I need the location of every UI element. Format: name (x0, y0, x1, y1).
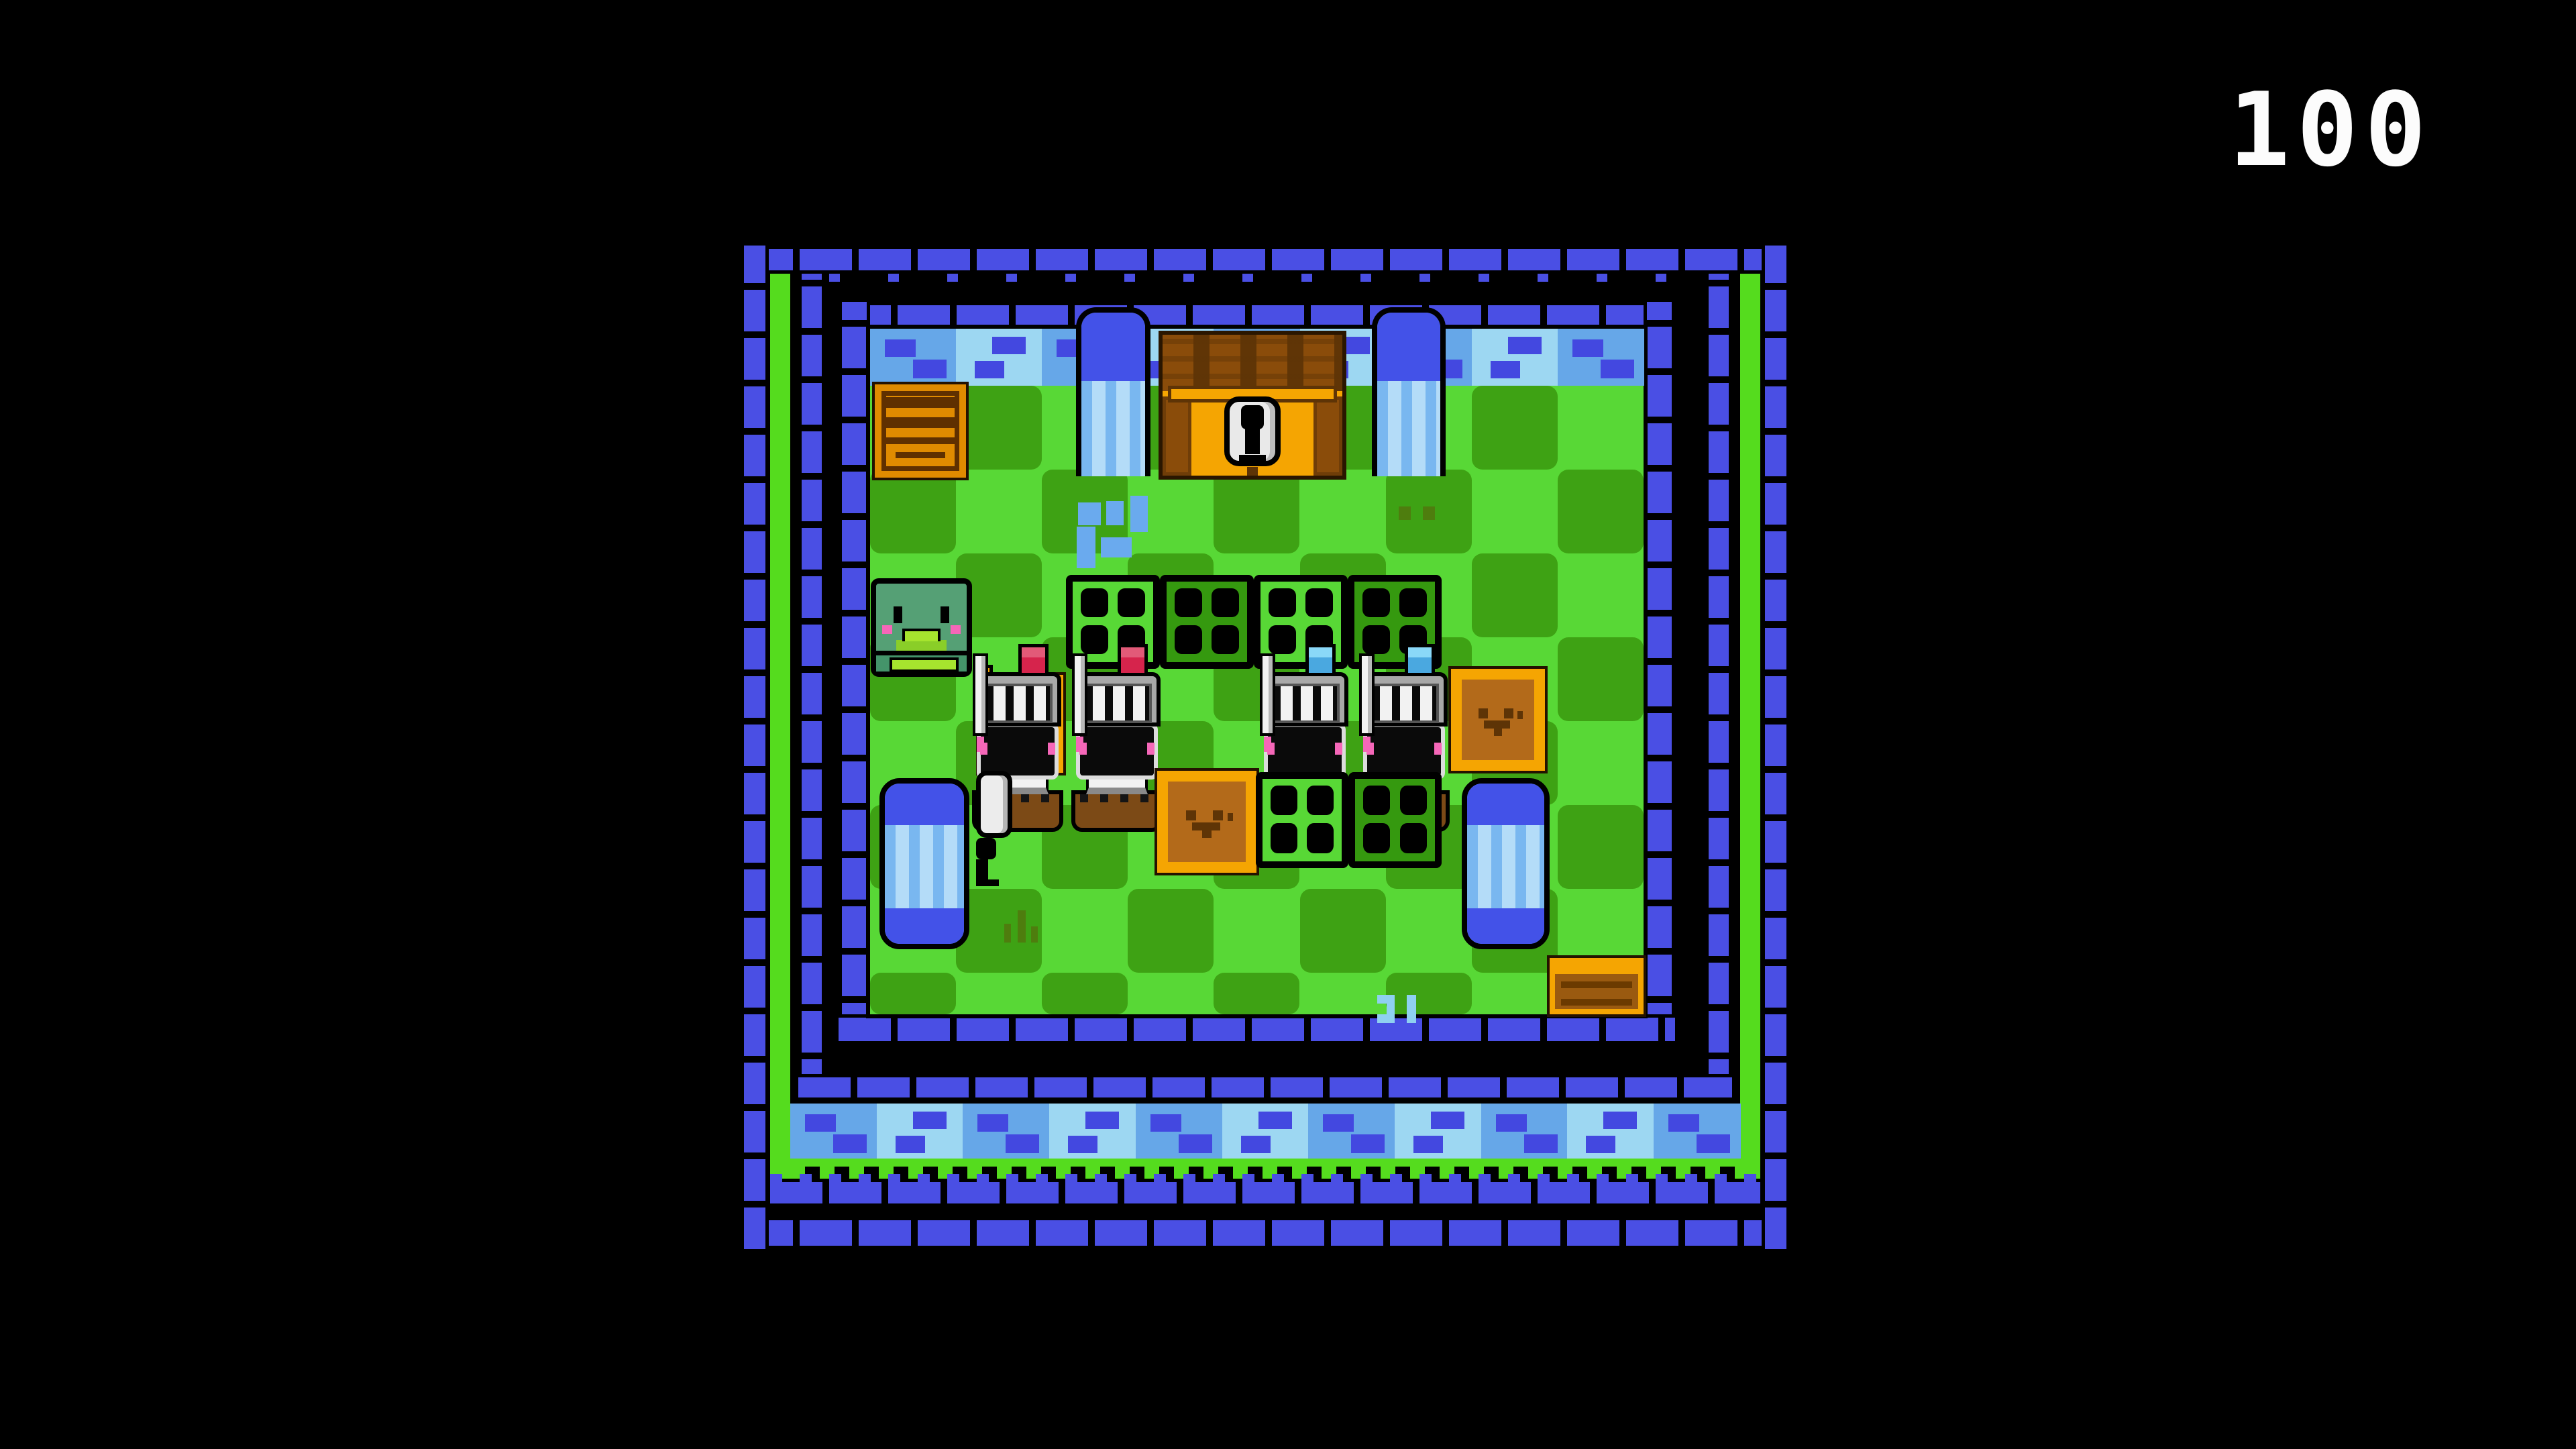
pixel (1101, 537, 1132, 557)
knight-red (1067, 644, 1167, 832)
water-tile (1049, 1104, 1136, 1159)
frame-mid-left (798, 274, 825, 1101)
water-tile (1308, 1104, 1395, 1159)
water-patch (992, 337, 1026, 354)
white-plume-icon (1260, 653, 1275, 736)
water-patch (1179, 1134, 1212, 1153)
water-patch (1150, 1114, 1181, 1132)
water-patch (975, 361, 1004, 378)
pillar-bottom-right (1462, 778, 1550, 949)
water-patch (1496, 1114, 1527, 1132)
water-patch (1524, 1134, 1558, 1153)
game-board[interactable] (741, 246, 1790, 1249)
dice-dot (1175, 625, 1202, 654)
plume-icon (1118, 644, 1147, 676)
locked-door (1159, 331, 1346, 480)
water-patch (1603, 1112, 1637, 1129)
pixel (1407, 995, 1416, 1023)
water-patch (977, 1114, 1008, 1132)
moat-water-strip (790, 1104, 1740, 1159)
crate-small (1550, 958, 1644, 1014)
grass-dark-tile (1214, 973, 1299, 1014)
pillar-top-right (1372, 307, 1446, 476)
water-patch (1351, 1134, 1385, 1153)
pixel (1004, 924, 1011, 943)
water-patch (1586, 1136, 1615, 1153)
water-tile (1222, 1104, 1309, 1159)
playfield (870, 329, 1644, 1014)
score-display: 100 (2229, 79, 2433, 181)
pixel (1130, 496, 1148, 532)
keyhole-icon (976, 771, 1012, 838)
white-plume-icon (973, 653, 987, 736)
water-patch (1491, 361, 1520, 378)
pixel (1031, 926, 1038, 943)
water-patch (1006, 1134, 1039, 1153)
pixel (1387, 1004, 1395, 1014)
water-patch (885, 339, 916, 357)
grass-dark-tile (870, 973, 956, 1014)
dice-block (1348, 772, 1442, 868)
key-icon (977, 574, 1012, 629)
grass-dark-tile (956, 386, 1042, 470)
water-patch (1258, 1112, 1292, 1129)
white-plume-icon (1072, 653, 1087, 736)
frame-notch-top (770, 274, 1760, 282)
frame-green-left (770, 274, 790, 1179)
wall-top (839, 302, 1675, 329)
dice-dot (1271, 823, 1297, 853)
water-patch (1668, 1114, 1699, 1132)
pillar-top-left (1076, 307, 1150, 476)
dice-dot (1269, 588, 1296, 617)
water-patch (1241, 1136, 1271, 1153)
pixel (1377, 995, 1395, 1004)
frog-character (871, 578, 972, 677)
dice-dot (1399, 588, 1427, 617)
frame-mid-right (1705, 274, 1732, 1101)
grass-dark-tile (1300, 889, 1386, 973)
grass-dark-tile (1558, 805, 1644, 889)
water-tile (1472, 329, 1558, 386)
game-screen: 100 (0, 0, 2576, 1449)
pixel (1018, 910, 1026, 943)
white-plume-icon (1359, 653, 1374, 736)
dice-dot (1081, 588, 1108, 617)
water-patch (1697, 1134, 1730, 1153)
dice-dot (1307, 786, 1334, 815)
plume-icon (1018, 644, 1048, 676)
dice-dot (1305, 588, 1333, 617)
frame-battlement-row (770, 1179, 1760, 1207)
water-tile (870, 329, 957, 386)
dice-dot (1118, 588, 1145, 617)
frame-outer-right (1762, 246, 1790, 1249)
water-tile (963, 1104, 1050, 1159)
water-patch (913, 1112, 947, 1129)
plume-icon (1405, 644, 1434, 676)
dice-dot (1400, 786, 1427, 815)
water-patch (1068, 1136, 1097, 1153)
crate-slatted (875, 384, 966, 478)
water-patch (1323, 1114, 1354, 1132)
water-patch (1085, 1112, 1119, 1129)
dice-block (1256, 772, 1348, 868)
water-patch (896, 1136, 925, 1153)
water-tile (1481, 1104, 1568, 1159)
pixel (1399, 506, 1411, 520)
crate-face (1451, 669, 1545, 771)
grass-dark-tile (1472, 386, 1558, 470)
grass-dark-tile (870, 470, 956, 553)
dice-dot (1363, 786, 1390, 815)
grass-dark-tile (1042, 973, 1128, 1014)
dice-block (1160, 575, 1254, 669)
plume-icon (1305, 644, 1335, 676)
grass-dark-tile (1558, 470, 1644, 553)
dice-dot (1400, 823, 1427, 853)
water-patch (833, 1134, 867, 1153)
dice-dot (1175, 588, 1202, 617)
grass-dark-tile (1214, 470, 1299, 553)
grass-dark-tile (1472, 553, 1558, 637)
water-patch (805, 1114, 836, 1132)
dice-dot (1362, 588, 1390, 617)
keyhole-icon (1224, 396, 1281, 466)
water-tile (790, 1104, 877, 1159)
grass-dark-tile (1386, 973, 1472, 1014)
water-patch (1601, 360, 1634, 378)
water-patch (1413, 1136, 1443, 1153)
pixel (1377, 1014, 1395, 1023)
water-tile (1558, 329, 1644, 386)
dice-dot (1212, 588, 1239, 617)
water-tile (1654, 1104, 1741, 1159)
keyhole-block (976, 771, 1062, 875)
frame-outer-bottom (741, 1217, 1790, 1249)
wall-right (1644, 302, 1675, 1044)
pillar-bottom-left (879, 778, 969, 949)
frame-green-right (1740, 274, 1760, 1179)
water-patch (1431, 1112, 1464, 1129)
dice-dot (1271, 786, 1297, 815)
dice-dot (1363, 823, 1390, 853)
dice-dot (1307, 823, 1334, 853)
pixel (1078, 502, 1101, 525)
water-tile (1136, 1104, 1223, 1159)
grass-dark-tile (1558, 637, 1644, 721)
frame-outer-left (741, 246, 769, 1249)
water-tile (877, 1104, 964, 1159)
pixel (1423, 506, 1435, 520)
pixel (1106, 501, 1124, 525)
water-tile (956, 329, 1042, 386)
frame-mid-bottom (798, 1074, 1732, 1101)
water-tile (1567, 1104, 1654, 1159)
water-patch (913, 360, 947, 378)
frame-outer-top (741, 246, 1790, 274)
crate-face (1157, 771, 1256, 873)
pixel (1077, 527, 1095, 568)
water-tile (1395, 1104, 1482, 1159)
wall-bottom (839, 1014, 1675, 1044)
grass-dark-tile (1128, 889, 1214, 973)
wall-left (839, 302, 870, 1044)
dice-dot (1212, 625, 1239, 654)
water-patch (1508, 337, 1542, 354)
water-patch (1572, 339, 1603, 357)
